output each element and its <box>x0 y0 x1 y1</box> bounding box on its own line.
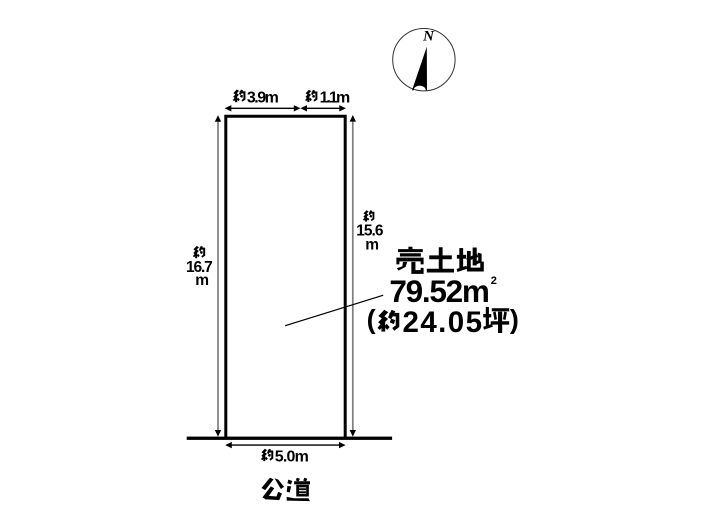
svg-text:m: m <box>195 272 209 289</box>
svg-text:1.1m: 1.1m <box>320 89 351 106</box>
svg-text:3.9m: 3.9m <box>247 89 279 106</box>
svg-text:24.05: 24.05 <box>403 306 483 339</box>
svg-text:79.52m: 79.52m <box>389 273 490 309</box>
svg-text:(: ( <box>367 304 376 334</box>
svg-text:m: m <box>365 236 379 253</box>
svg-text:): ) <box>510 304 519 334</box>
svg-text:N: N <box>422 29 435 45</box>
svg-text:5.0m: 5.0m <box>275 448 309 465</box>
svg-text:2: 2 <box>491 275 497 287</box>
